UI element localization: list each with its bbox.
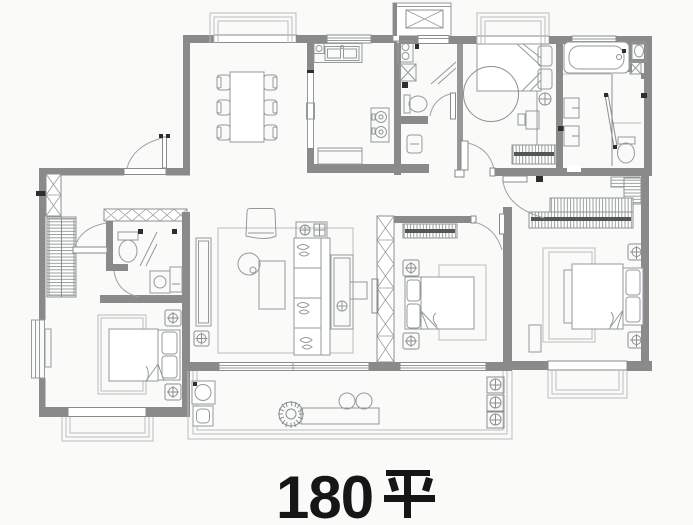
svg-text:180: 180 [276, 464, 373, 525]
